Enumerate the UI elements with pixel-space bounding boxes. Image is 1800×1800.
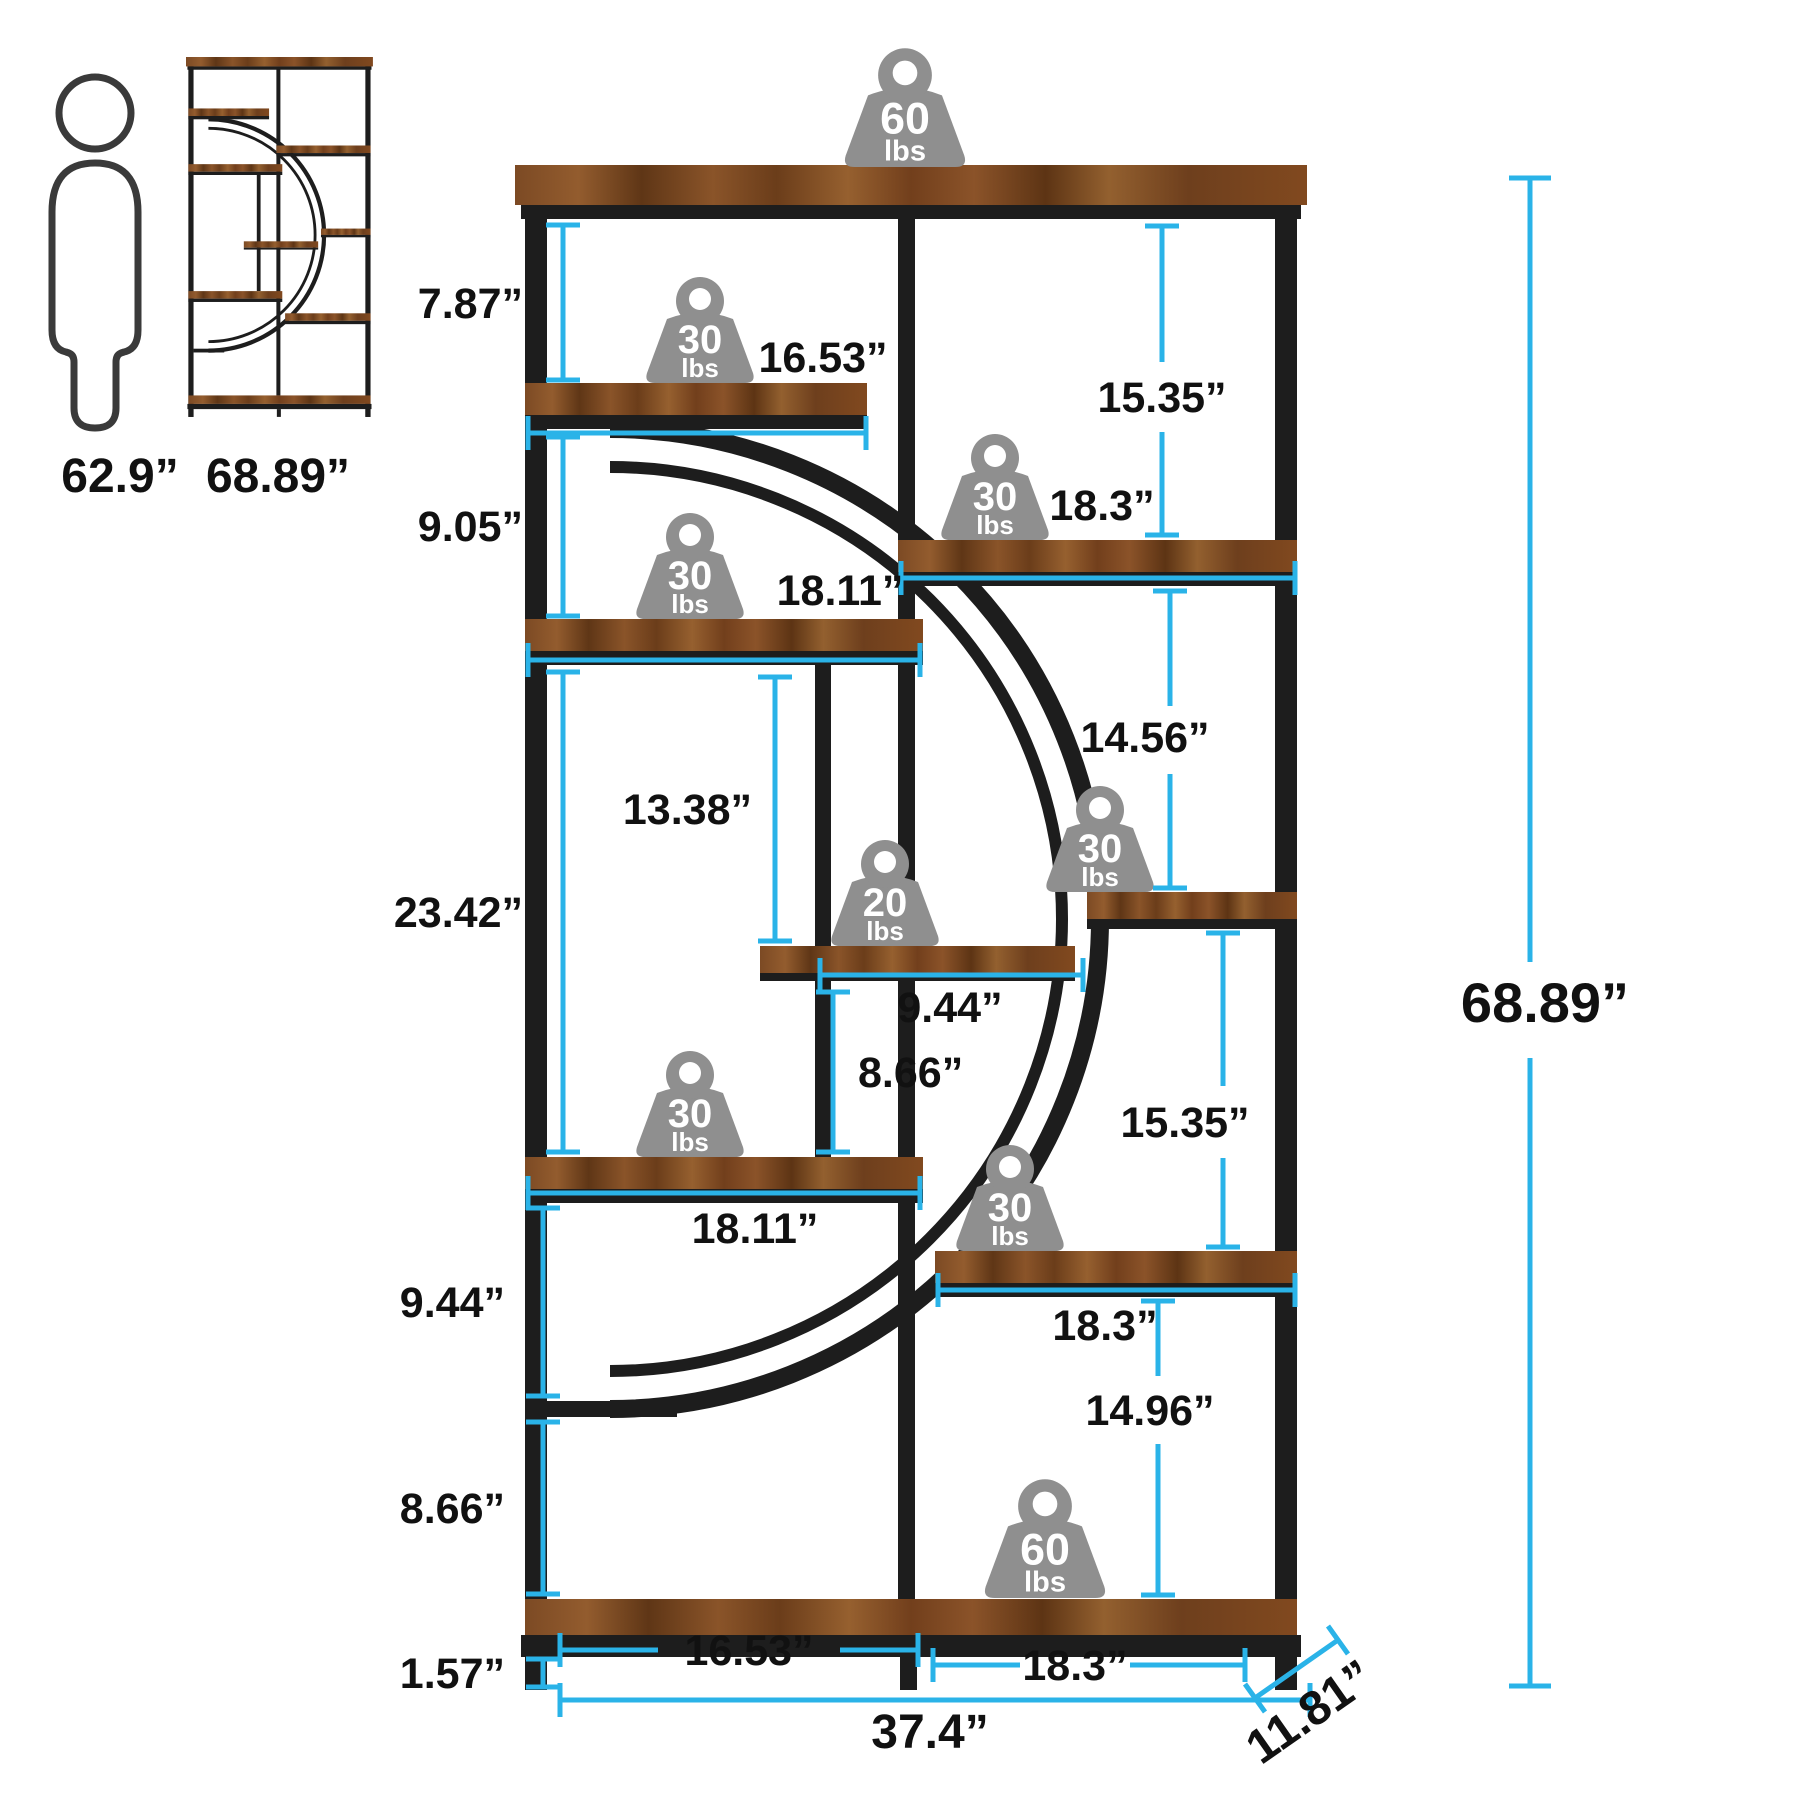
dim-label-left-4: 8.66” <box>400 1485 505 1533</box>
dim-label-left-0: 7.87” <box>418 280 523 328</box>
dim-label-shelf1-width: 16.53” <box>758 334 887 382</box>
dim-line-left-9-05 <box>546 437 580 616</box>
weight-capacity-icon-shelf2: 30 lbs <box>941 434 1048 540</box>
dim-label-shelf6-width: 18.11” <box>692 1205 819 1253</box>
weight-unit: lbs <box>1081 862 1119 892</box>
dim-label-overall-height: 68.89” <box>1461 971 1629 1034</box>
weight-capacity-icon-shelf1: 30 lbs <box>646 277 753 383</box>
dim-line-overall-height <box>1509 178 1551 1686</box>
weight-unit: lbs <box>681 353 719 383</box>
dim-line-right-15-35-low <box>1206 933 1240 1247</box>
weight-capacity-icon-shelf3: 30 lbs <box>636 513 743 619</box>
dim-label-left-3: 9.44” <box>400 1279 505 1327</box>
dim-label-left-1: 9.05” <box>418 503 523 551</box>
dim-label-right-top-gap: 15.35” <box>1097 374 1226 422</box>
weight-unit: lbs <box>1024 1566 1066 1598</box>
dim-label-bottom-left-width: 16.53” <box>684 1627 813 1675</box>
human-height-label: 62.9” <box>61 450 178 503</box>
dim-line-mid-opening <box>758 677 792 941</box>
product-dimension-diagram: 62.9” 68.89” 60 lbs 30 lbs 30 lbs 30 lbs… <box>0 0 1800 1800</box>
dim-line-left-23-42 <box>546 672 580 1152</box>
dim-label-left-5: 1.57” <box>400 1650 505 1698</box>
weight-capacity-icon-arcshelf: 30 lbs <box>1046 786 1153 892</box>
dim-label-overall-width: 37.4” <box>871 1706 988 1759</box>
dim-label-right-bottom-gap: 14.96” <box>1085 1387 1214 1435</box>
dim-label-shelf7-width: 18.3” <box>1052 1302 1157 1350</box>
human-body-outline <box>52 163 138 428</box>
product-thumbnail <box>186 57 373 417</box>
dim-label-left-2: 23.42” <box>394 889 523 937</box>
dim-label-bottom-right-width: 18.3” <box>1022 1642 1127 1690</box>
dim-label-right-upper-gap: 14.56” <box>1080 714 1209 762</box>
human-silhouette <box>52 77 138 428</box>
dim-label-shelf2-width: 18.3” <box>1049 482 1154 530</box>
weight-capacity-icon-midshelf: 20 lbs <box>831 840 938 946</box>
weight-unit: lbs <box>671 1127 709 1157</box>
dim-label-mid-opening: 13.38” <box>623 786 752 834</box>
weight-unit: lbs <box>671 589 709 619</box>
weight-capacity-icon-shelf6: 30 lbs <box>636 1051 743 1157</box>
dim-label-right-lower-gap: 15.35” <box>1120 1099 1249 1147</box>
dim-label-mid-gap: 8.66” <box>858 1049 963 1097</box>
weight-unit: lbs <box>991 1221 1029 1251</box>
weight-unit: lbs <box>884 135 926 167</box>
weight-unit: lbs <box>976 510 1014 540</box>
dim-label-mid-width: 9.44” <box>897 984 1002 1032</box>
diagram-canvas: 62.9” 68.89” 60 lbs 30 lbs 30 lbs 30 lbs… <box>0 0 1800 1800</box>
weight-unit: lbs <box>866 916 904 946</box>
weight-capacity-icon-top: 60 lbs <box>845 48 965 167</box>
human-head-outline <box>59 77 131 149</box>
dim-line-left-7-87 <box>546 225 580 380</box>
dim-label-depth: 11.81” <box>1237 1650 1383 1775</box>
thumbnail-height-label: 68.89” <box>206 450 350 503</box>
weight-capacity-icon-bottom: 60 lbs <box>985 1479 1105 1598</box>
dim-label-shelf3-width: 18.11” <box>777 567 904 615</box>
